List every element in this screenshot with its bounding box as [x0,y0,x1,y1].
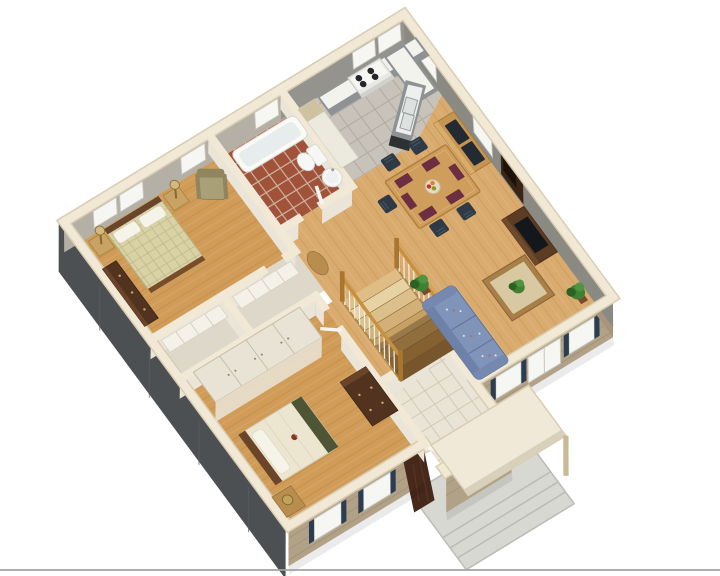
ground-baseline [0,569,720,571]
floor-plan-render [0,0,720,576]
screenshot-canvas: Isometric 3D dollhouse-view rendering of… [0,0,720,576]
armchair [195,169,229,200]
house [32,11,706,576]
